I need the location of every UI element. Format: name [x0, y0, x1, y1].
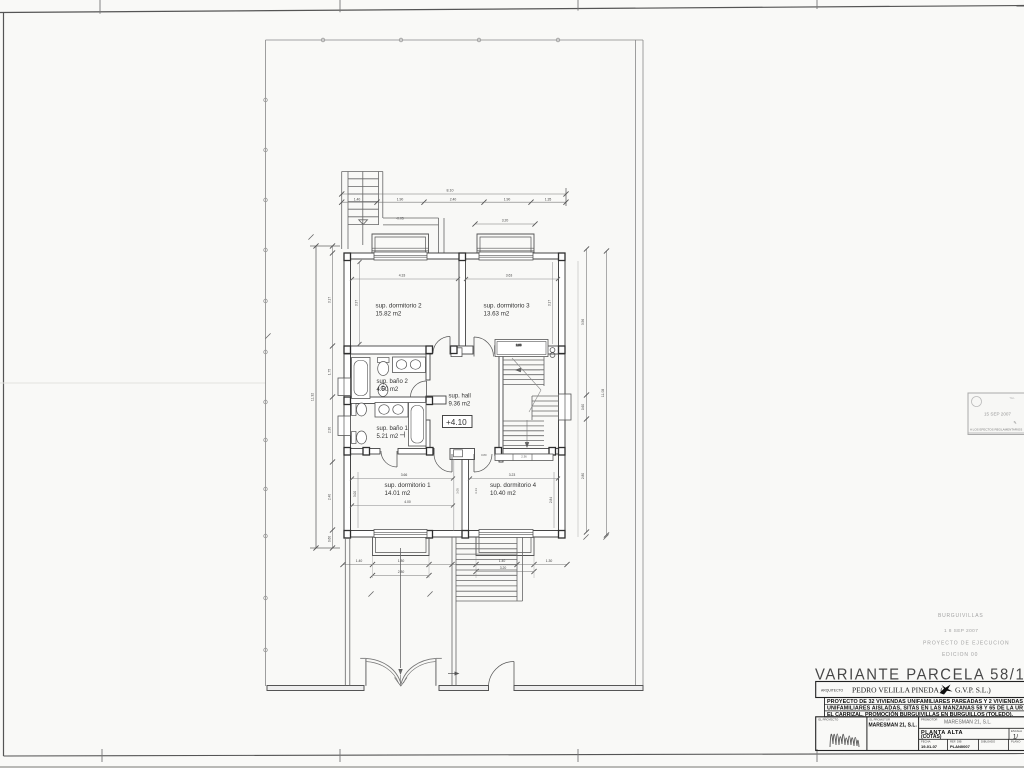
svg-text:2.80: 2.80: [581, 473, 585, 479]
svg-text:10.40 m2: 10.40 m2: [490, 490, 516, 497]
svg-text:3.56: 3.56: [581, 319, 585, 325]
svg-text:PROMOTOR: PROMOTOR: [921, 718, 937, 722]
svg-text:15.82 m2: 15.82 m2: [376, 311, 402, 318]
svg-text:ESCALA: ESCALA: [1011, 729, 1022, 733]
svg-text:4.00: 4.00: [404, 500, 411, 504]
svg-text:TEL: TEL: [1009, 396, 1015, 400]
svg-text:2.36: 2.36: [521, 455, 527, 459]
svg-text:✎: ✎: [1013, 420, 1016, 425]
svg-text:9.36 m2: 9.36 m2: [449, 402, 471, 408]
svg-text:3.37: 3.37: [355, 300, 359, 306]
svg-text:sup. dormitorio 2: sup. dormitorio 2: [376, 303, 423, 310]
svg-text:1.40: 1.40: [356, 559, 363, 563]
svg-text:4.33: 4.33: [399, 274, 406, 278]
svg-text:11.32: 11.32: [311, 393, 315, 401]
svg-text:15 SEP 2007: 15 SEP 2007: [984, 412, 1011, 417]
svg-text:PEDRO VELILLA PINEDA (: PEDRO VELILLA PINEDA (: [852, 685, 943, 694]
svg-text:2.84: 2.84: [549, 497, 553, 503]
svg-text:3.20: 3.20: [502, 218, 509, 222]
svg-text:1.90: 1.90: [397, 198, 404, 202]
svg-text:3.00: 3.00: [353, 491, 357, 497]
svg-text:19-01-07: 19-01-07: [921, 744, 938, 749]
svg-text:14.01 m2: 14.01 m2: [385, 490, 411, 497]
svg-text:8.10: 8.10: [447, 189, 454, 193]
svg-text:A LOS EFECTOS REGLAMENTARIOS: A LOS EFECTOS REGLAMENTARIOS: [970, 428, 1022, 432]
svg-text:MARESMAN 21, S.L.: MARESMAN 21, S.L.: [869, 723, 918, 729]
svg-text:MARESMAN 21, S.L.: MARESMAN 21, S.L.: [944, 720, 992, 726]
svg-text:1 8 SEP 2007: 1 8 SEP 2007: [944, 628, 978, 634]
svg-text:2.08: 2.08: [516, 343, 522, 347]
svg-text:5.21 m2: 5.21 m2: [377, 434, 399, 440]
svg-text:13.63 m2: 13.63 m2: [484, 311, 510, 318]
svg-text:2.40: 2.40: [450, 198, 457, 202]
svg-text:4.50 m2: 4.50 m2: [377, 387, 399, 393]
svg-text:sup. dormitorio 1: sup. dormitorio 1: [385, 482, 432, 489]
svg-text:2.40: 2.40: [328, 494, 332, 500]
svg-text:sup. baño 2: sup. baño 2: [377, 379, 409, 385]
svg-text:REF. DIB: REF. DIB: [950, 740, 962, 744]
svg-text:PLANO: PLANO: [1011, 740, 1021, 744]
svg-text:sup. hall: sup. hall: [449, 394, 471, 400]
svg-text:sup. dormitorio 3: sup. dormitorio 3: [484, 303, 531, 310]
svg-text:1.35: 1.35: [545, 198, 552, 202]
svg-text:-0.05: -0.05: [396, 217, 404, 221]
svg-text:1.80: 1.80: [398, 559, 405, 563]
svg-text:2.30: 2.30: [328, 427, 332, 433]
svg-text:DIBUJADO: DIBUJADO: [981, 740, 996, 744]
svg-text:+4.10: +4.10: [446, 418, 467, 427]
svg-text:ARQUITECTO: ARQUITECTO: [821, 689, 844, 693]
svg-text:sup. dormitorio 4: sup. dormitorio 4: [490, 482, 537, 489]
svg-text:3.23: 3.23: [509, 473, 516, 477]
svg-text:3.17: 3.17: [328, 297, 332, 303]
svg-text:3.17: 3.17: [548, 300, 552, 306]
svg-text:1.90: 1.90: [504, 198, 511, 202]
svg-text:3.05: 3.05: [456, 488, 460, 494]
svg-text:EL PROYECTO: EL PROYECTO: [819, 718, 840, 722]
svg-text:PROYECTO DE EJECUCION: PROYECTO DE EJECUCION: [923, 641, 1010, 647]
svg-text:3.63: 3.63: [506, 274, 513, 278]
svg-text:G.V.P. S.L.): G.V.P. S.L.): [955, 685, 991, 694]
svg-text:EL PROMOTOR: EL PROMOTOR: [870, 718, 891, 722]
svg-text:1.40: 1.40: [354, 198, 361, 202]
svg-text:0.60: 0.60: [328, 536, 332, 542]
svg-text:0.80: 0.80: [481, 453, 487, 457]
svg-text:0.60: 0.60: [581, 404, 585, 410]
svg-text:3.13: 3.13: [474, 488, 478, 494]
svg-text:1.75: 1.75: [328, 369, 332, 375]
svg-text:sup. baño 1: sup. baño 1: [377, 426, 409, 432]
svg-text:BURGUIVILLAS: BURGUIVILLAS: [938, 613, 983, 619]
svg-text:3.66: 3.66: [401, 473, 408, 477]
svg-text:1.30: 1.30: [546, 559, 553, 563]
svg-text:11.08: 11.08: [601, 389, 605, 397]
svg-text:FECHA: FECHA: [921, 740, 931, 744]
svg-text:2.80: 2.80: [398, 570, 405, 574]
svg-text:PLAN0007: PLAN0007: [950, 744, 971, 749]
svg-text:EDICION 00: EDICION 00: [942, 652, 978, 658]
